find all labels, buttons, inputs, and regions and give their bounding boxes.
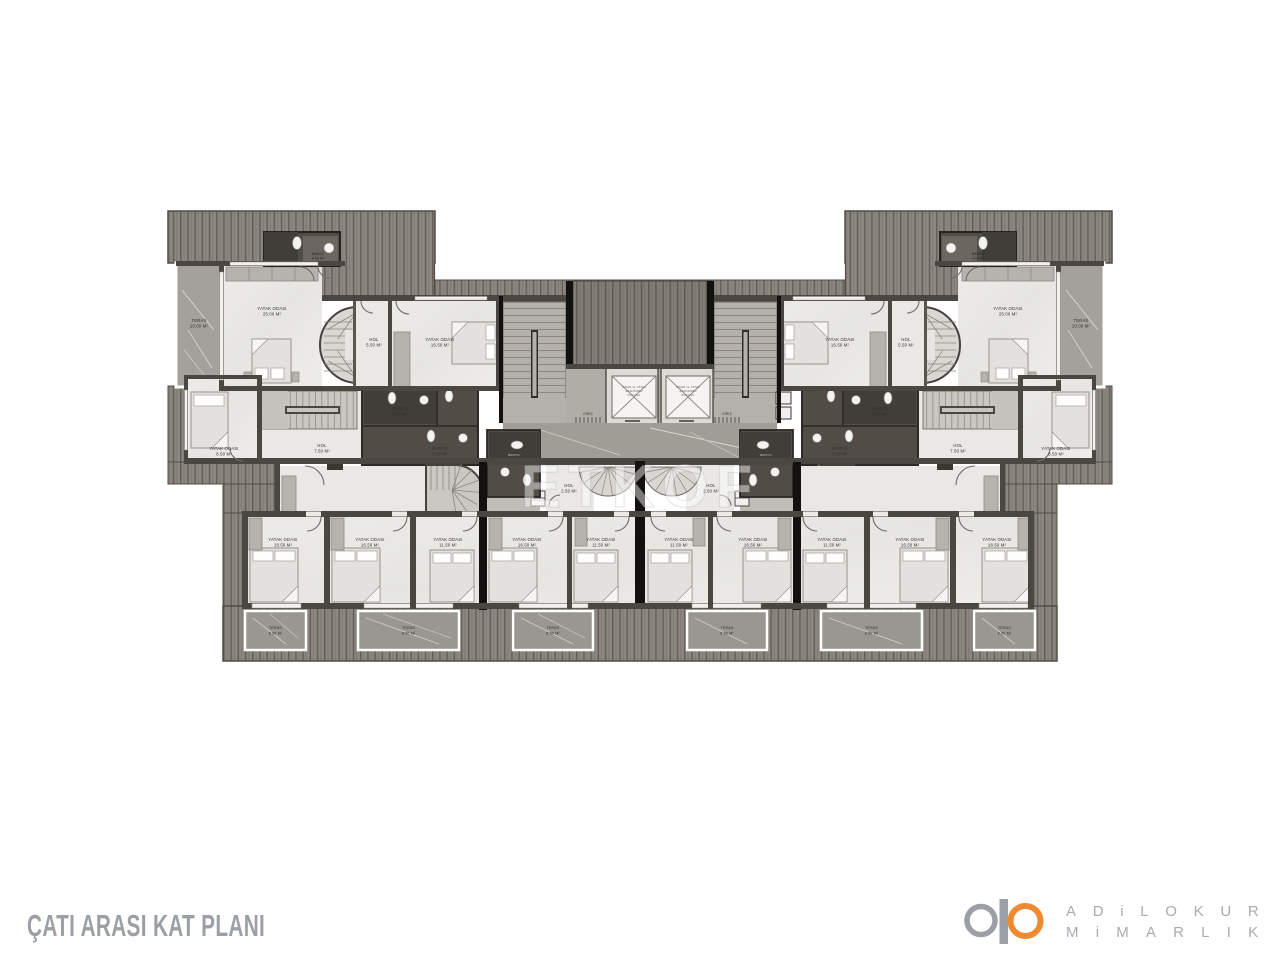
svg-text:YATAK ODASI: YATAK ODASI (512, 537, 541, 542)
svg-text:18.50 M²: 18.50 M² (988, 543, 1007, 548)
svg-text:6.50 M²: 6.50 M² (269, 632, 283, 636)
svg-text:25.00 M²: 25.00 M² (263, 312, 282, 317)
svg-text:2.50 M²: 2.50 M² (561, 489, 577, 494)
svg-text:4.25 M²: 4.25 M² (972, 257, 984, 261)
svg-text:TERAS: TERAS (721, 626, 734, 630)
svg-text:HOL: HOL (706, 483, 716, 488)
svg-text:16.50 M²: 16.50 M² (431, 343, 450, 348)
svg-text:6.50 M²: 6.50 M² (998, 632, 1012, 636)
svg-text:11.50 M²: 11.50 M² (592, 543, 610, 548)
svg-text:2.50 M²: 2.50 M² (703, 489, 719, 494)
svg-text:HOL: HOL (564, 483, 574, 488)
svg-text:25.00 M²: 25.00 M² (999, 312, 1018, 317)
svg-text:YATAK ODASI: YATAK ODASI (982, 537, 1011, 542)
svg-text:YATAK ODASI: YATAK ODASI (586, 537, 615, 542)
svg-text:16.50 M²: 16.50 M² (518, 543, 537, 548)
svg-text:8.50 M²: 8.50 M² (402, 632, 416, 636)
svg-text:10.00 M²: 10.00 M² (1072, 324, 1091, 329)
svg-text:YATAK ODASI: YATAK ODASI (425, 337, 454, 342)
svg-text:ÇATI ARASI KAT PLANI: ÇATI ARASI KAT PLANI (27, 908, 265, 943)
svg-text:11.50 M²: 11.50 M² (823, 543, 841, 548)
svg-text:YATAK ODASI: YATAK ODASI (825, 337, 854, 342)
svg-text:HOL: HOL (369, 337, 379, 342)
svg-text:5.50 M²: 5.50 M² (366, 343, 382, 348)
svg-text:5.00 M²: 5.00 M² (832, 452, 848, 457)
svg-text:TERAS: TERAS (998, 626, 1011, 630)
svg-text:YATAK ODASI: YATAK ODASI (993, 306, 1022, 311)
svg-text:16.50 M²: 16.50 M² (901, 543, 920, 548)
svg-text:KUYUSU: KUYUSU (682, 393, 695, 397)
svg-text:TERAS: TERAS (547, 626, 560, 630)
svg-text:4.50 M²: 4.50 M² (392, 412, 408, 417)
svg-text:GİRİŞ: GİRİŞ (583, 411, 593, 416)
svg-text:MiMARLIK: MiMARLIK (1066, 924, 1275, 941)
svg-text:YATAK ODASI: YATAK ODASI (433, 537, 462, 542)
svg-text:7.50 M²: 7.50 M² (314, 449, 330, 454)
svg-text:16.50 M²: 16.50 M² (831, 343, 850, 348)
svg-text:TERAS: TERAS (1074, 318, 1089, 323)
svg-text:10.00 M²: 10.00 M² (190, 324, 209, 329)
svg-text:16.50 M²: 16.50 M² (744, 543, 763, 548)
svg-text:5.50 M²: 5.50 M² (898, 343, 914, 348)
svg-text:BANYO: BANYO (392, 406, 408, 411)
svg-text:TERAS: TERAS (402, 626, 415, 630)
svg-text:TERAS: TERAS (865, 626, 878, 630)
svg-text:11.50 M²: 11.50 M² (439, 543, 457, 548)
svg-text:HOL: HOL (901, 337, 911, 342)
svg-text:BANYO: BANYO (872, 406, 888, 411)
svg-text:BANYO: BANYO (432, 446, 448, 451)
svg-text:11.50 M²: 11.50 M² (670, 543, 688, 548)
svg-text:HOL: HOL (317, 443, 327, 448)
svg-text:HOL: HOL (953, 443, 963, 448)
svg-text:YATAK ODASI: YATAK ODASI (1041, 446, 1070, 451)
svg-text:YATAK ODASI: YATAK ODASI (664, 537, 693, 542)
svg-text:4.25 M²: 4.25 M² (312, 257, 324, 261)
svg-text:8.50 M²: 8.50 M² (720, 632, 734, 636)
svg-text:BANYO: BANYO (832, 446, 848, 451)
svg-text:BANYO: BANYO (760, 453, 772, 457)
svg-text:YATAK ODASI: YATAK ODASI (817, 537, 846, 542)
svg-text:BANYO: BANYO (508, 453, 520, 457)
svg-text:BANYO: BANYO (312, 252, 324, 256)
svg-text:BANYO: BANYO (972, 252, 984, 256)
svg-text:YATAK ODASI: YATAK ODASI (268, 537, 297, 542)
svg-text:4.50 M²: 4.50 M² (872, 412, 888, 417)
svg-text:8.50 M²: 8.50 M² (1048, 452, 1064, 457)
svg-text:YATAK ODASI: YATAK ODASI (738, 537, 767, 542)
svg-text:YATAK ODASI: YATAK ODASI (355, 537, 384, 542)
svg-text:18.50 M²: 18.50 M² (274, 543, 293, 548)
svg-text:7.50 M²: 7.50 M² (950, 449, 966, 454)
svg-text:ETKOF: ETKOF (521, 453, 759, 520)
svg-text:KUYUSU: KUYUSU (628, 393, 641, 397)
svg-text:ADiLOKUR: ADiLOKUR (1066, 903, 1275, 920)
svg-text:8.50 M²: 8.50 M² (546, 632, 560, 636)
svg-text:YATAK ODASI: YATAK ODASI (895, 537, 924, 542)
svg-text:8.50 M²: 8.50 M² (865, 632, 879, 636)
svg-text:YATAK ODASI: YATAK ODASI (209, 446, 238, 451)
svg-text:8.50 M²: 8.50 M² (216, 452, 232, 457)
svg-text:GİRİŞ: GİRİŞ (722, 411, 732, 416)
svg-text:TERAS: TERAS (192, 318, 207, 323)
svg-text:16.50 M²: 16.50 M² (361, 543, 380, 548)
svg-text:TERAS: TERAS (269, 626, 282, 630)
svg-text:YATAK ODASI: YATAK ODASI (257, 306, 286, 311)
svg-text:5.00 M²: 5.00 M² (432, 452, 448, 457)
